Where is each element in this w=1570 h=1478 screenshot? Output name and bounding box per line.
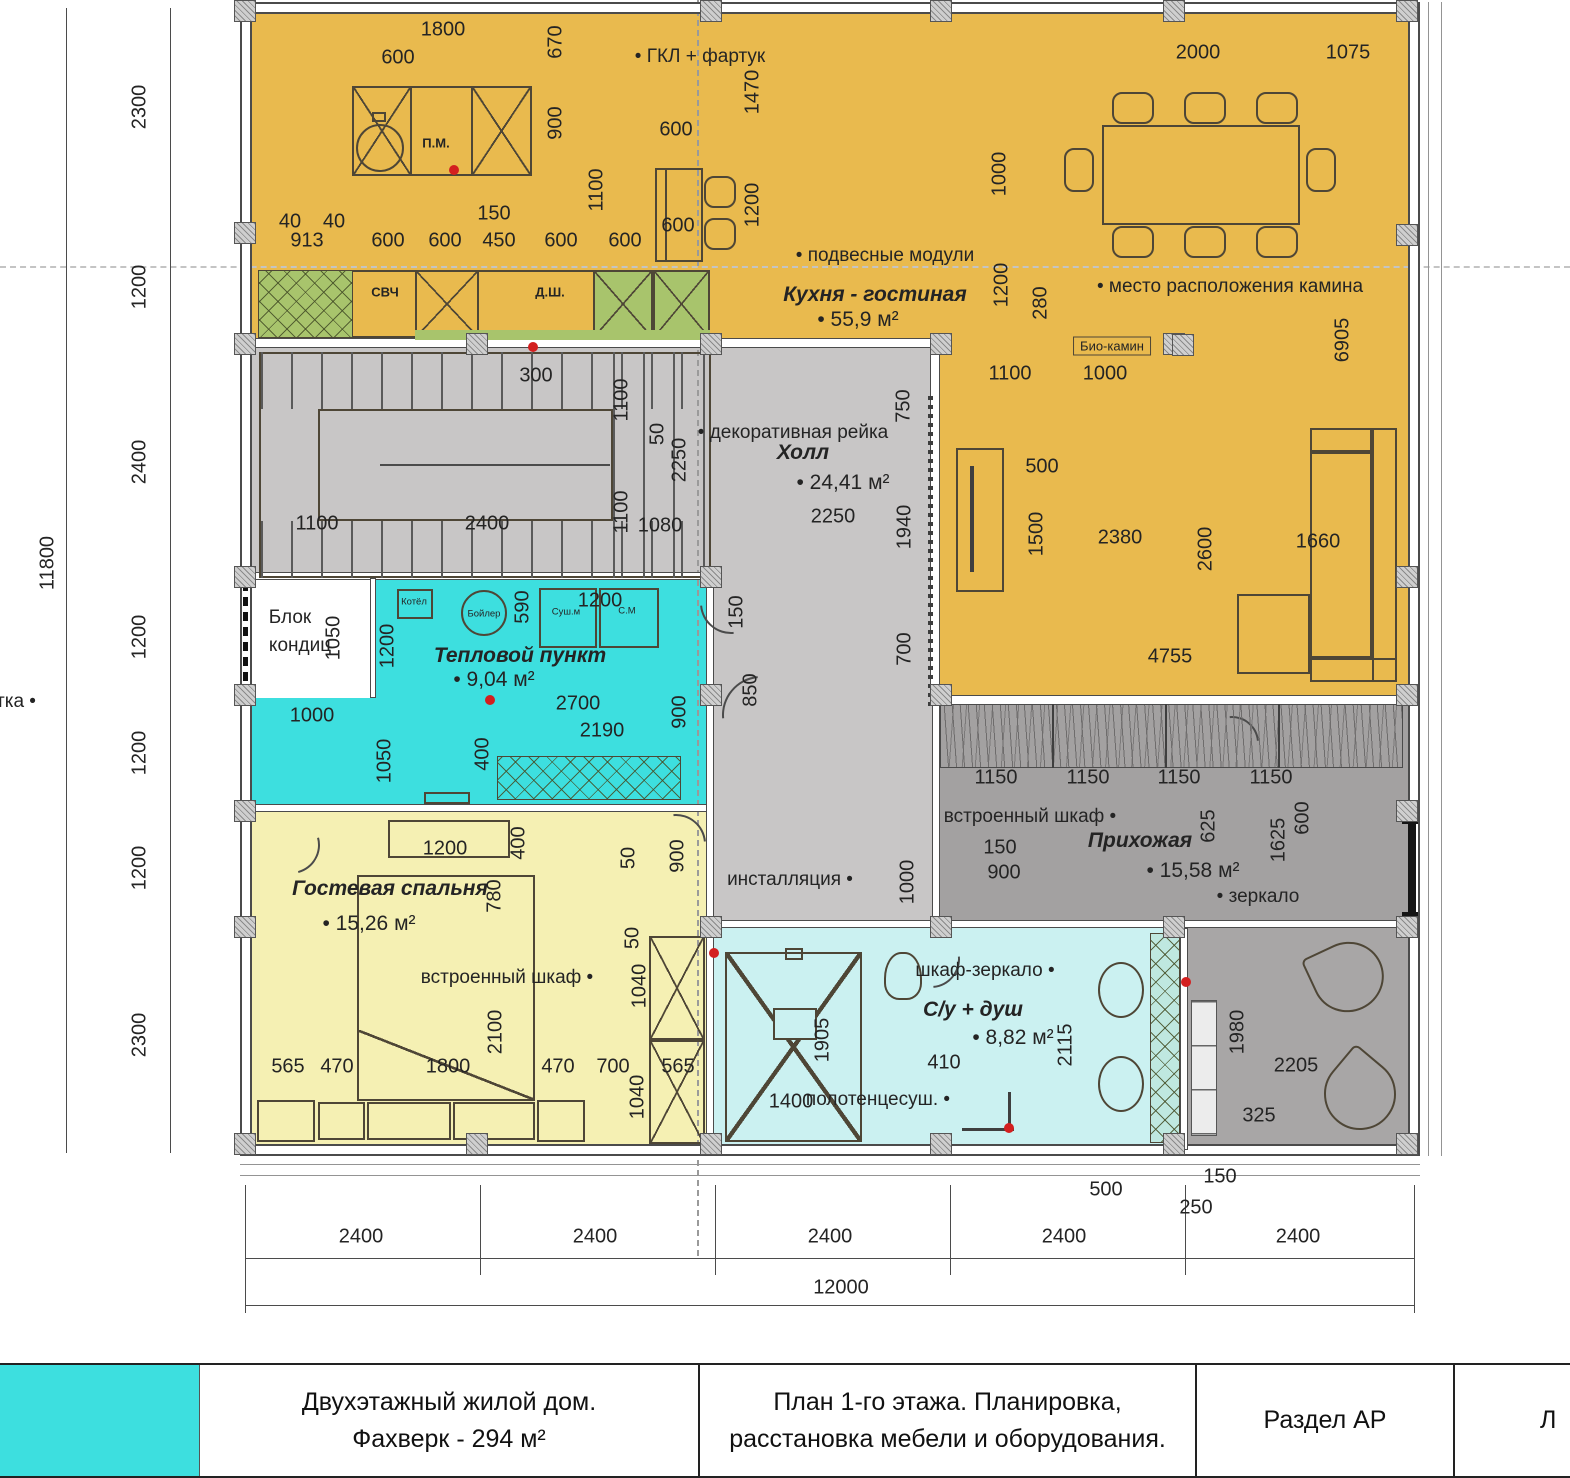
- sheet-name-line1: План 1-го этажа. Планировка,: [773, 1384, 1121, 1420]
- dim-label: 600: [608, 230, 641, 253]
- decorative-rail-dots: [928, 396, 933, 708]
- room-label-guest-bedroom: Гостевая спальня: [292, 877, 488, 901]
- dim-label: 2400: [1042, 1226, 1087, 1249]
- label-fireplace-location: место расположения камина: [1097, 276, 1363, 298]
- dim-label: 1905: [812, 1018, 835, 1063]
- mirror-panel: [1191, 1000, 1217, 1136]
- wall-bottom: [240, 1144, 1420, 1156]
- heat-shelf-x: [497, 756, 681, 800]
- dim-label: 1100: [586, 168, 609, 211]
- sink-left: [1098, 962, 1144, 1018]
- wardrobe-clothes: [940, 704, 1403, 768]
- dining-table: [1102, 125, 1300, 225]
- dim-label: 500: [1089, 1179, 1122, 1202]
- area-heat-point: 9,04 м²: [453, 668, 534, 692]
- column: [1396, 224, 1418, 246]
- sink-right: [1098, 1056, 1144, 1112]
- dim-label: 565: [271, 1056, 304, 1079]
- wardrobe-divider-1: [1052, 704, 1054, 768]
- bar-stool-2: [704, 218, 736, 250]
- label-washer: С.М: [618, 606, 635, 617]
- title-block-sheet-number: Л: [1455, 1365, 1570, 1476]
- dim-label: 50: [622, 927, 645, 949]
- dim-label: 900: [669, 695, 692, 728]
- label-hanging-modules: подвесные модули: [796, 245, 974, 267]
- marker-dot-2: [528, 342, 538, 352]
- dim-label: 2300: [129, 85, 152, 130]
- wall-bath-terrace: [1180, 928, 1188, 1150]
- dim-label: 50: [618, 847, 641, 869]
- dim-ext-6: [1414, 1185, 1415, 1313]
- label-boiler-unit: Котёл: [401, 597, 427, 608]
- counter-green-strip: [415, 330, 710, 340]
- dim-label: 1200: [742, 183, 765, 228]
- dim-label: 1980: [1227, 1010, 1250, 1055]
- dim-label: 1000: [1083, 363, 1128, 386]
- wall-corridor-entry: [932, 695, 940, 928]
- column: [700, 1133, 722, 1155]
- dim-label: 1100: [988, 363, 1031, 386]
- dim-label: 1200: [129, 265, 152, 310]
- column: [930, 0, 952, 22]
- column: [1396, 916, 1418, 938]
- dim-label: 1800: [426, 1056, 471, 1079]
- dim-label: 1500: [1026, 512, 1049, 557]
- dim-label: 12000: [813, 1277, 869, 1300]
- column: [700, 0, 722, 22]
- heat-device: [424, 792, 470, 804]
- dim-label: 2190: [580, 720, 625, 743]
- column: [930, 1133, 952, 1155]
- ac-unit-dashed-line: [243, 582, 248, 698]
- column: [700, 916, 722, 938]
- area-hall: 24,41 м²: [796, 471, 889, 495]
- sofa-seat: [1310, 452, 1372, 658]
- tv-screen: [970, 466, 974, 572]
- dim-label: 50: [647, 423, 670, 445]
- dim-label: 150: [1203, 1166, 1236, 1189]
- sheet-number-label: Л: [1540, 1402, 1556, 1438]
- wardrobe-divider-2: [1165, 704, 1167, 768]
- column: [466, 1133, 488, 1155]
- dim-label: 6905: [1332, 318, 1355, 363]
- bar-stool-1: [704, 176, 736, 208]
- dim-label: 600: [428, 230, 461, 253]
- dim-label: 1080: [638, 515, 683, 538]
- cabinet-green-left: [258, 270, 353, 338]
- sofa-bottom: [1310, 658, 1397, 682]
- dim-label: 1200: [423, 838, 468, 861]
- wardrobe-divider-3: [1278, 704, 1280, 768]
- label-builtin-wardrobe-entry: встроенный шкаф: [944, 806, 1116, 828]
- column: [234, 1133, 256, 1155]
- bed-bench-1: [257, 1100, 315, 1142]
- dim-label: 1100: [611, 378, 634, 421]
- title-block-section: Раздел АР: [1197, 1365, 1455, 1476]
- dim-label: 500: [1025, 456, 1058, 479]
- dim-label: 4755: [1148, 646, 1193, 669]
- dim-label: 325: [1242, 1105, 1275, 1128]
- label-builtin-wardrobe-bedroom: встроенный шкаф: [421, 967, 593, 989]
- column: [700, 684, 722, 706]
- cabinet-x-1: [415, 270, 479, 338]
- dim-label: 280: [1030, 286, 1053, 319]
- column: [1396, 566, 1418, 588]
- wall-corridor-left: [706, 572, 714, 1148]
- dim-label: 250: [1179, 1197, 1212, 1220]
- label-mirror: зеркало: [1217, 886, 1300, 908]
- dim-label: 1200: [578, 590, 623, 613]
- dim-label: 900: [987, 862, 1020, 885]
- sheet-name-line2: расстановка мебели и оборудования.: [729, 1421, 1166, 1457]
- label-dsh: Д.Ш.: [535, 285, 565, 300]
- dim-label: 600: [659, 119, 692, 142]
- dim-label: 1200: [129, 731, 152, 776]
- dim-label: 1200: [129, 615, 152, 660]
- dim-label: 1800: [421, 19, 466, 42]
- dim-label: 600: [544, 230, 577, 253]
- dim-label: 400: [508, 826, 531, 859]
- room-label-kitchen-living: Кухня - гостиная: [783, 283, 966, 307]
- dim-label: 565: [661, 1056, 694, 1079]
- column: [234, 0, 256, 22]
- area-kitchen-living: 55,9 м²: [817, 308, 898, 332]
- dim-label: 1470: [742, 70, 765, 115]
- column: [1163, 0, 1185, 22]
- marker-dot-5: [1004, 1123, 1014, 1133]
- dim-ext-1: [245, 1185, 246, 1313]
- dim-label: 2400: [573, 1226, 618, 1249]
- column: [234, 222, 256, 244]
- dim-label: 1075: [1326, 42, 1371, 65]
- dim-label: 410: [927, 1052, 960, 1075]
- dim-label: 900: [667, 839, 690, 872]
- marker-dot-4: [709, 948, 719, 958]
- title-block: Двухэтажный жилой дом. Фахверк - 294 м² …: [0, 1363, 1570, 1478]
- sink-tap: [372, 112, 386, 122]
- dim-label: 2400: [808, 1226, 853, 1249]
- column: [234, 800, 256, 822]
- bed-bench-3: [367, 1102, 451, 1140]
- dim-ext-3: [715, 1185, 716, 1275]
- ground-line-bottom: [240, 1164, 1420, 1176]
- dim-label: 1040: [629, 964, 652, 1009]
- shower-tap: [785, 948, 803, 960]
- column: [1396, 684, 1418, 706]
- project-name-line1: Двухэтажный жилой дом.: [302, 1384, 596, 1420]
- tv-unit: [956, 448, 1004, 592]
- dim-label: 300: [519, 365, 552, 388]
- column: [234, 566, 256, 588]
- dining-chair-left: [1064, 148, 1094, 192]
- room-label-entry: Прихожая: [1088, 829, 1192, 853]
- dim-label: 913: [290, 230, 323, 253]
- title-block-project: Двухэтажный жилой дом. Фахверк - 294 м²: [200, 1365, 700, 1476]
- column: [1396, 800, 1418, 822]
- column: [700, 333, 722, 355]
- dim-label: 11800: [37, 536, 60, 590]
- room-label-heat-point: Тепловой пункт: [434, 644, 606, 668]
- dim-line-left-outer: [66, 8, 67, 1153]
- marker-dot-1: [449, 165, 459, 175]
- column: [1396, 0, 1418, 22]
- marker-dot-6: [1181, 977, 1191, 987]
- dim-label: 1150: [974, 767, 1017, 790]
- dim-label: 750: [893, 389, 916, 422]
- section-label: Раздел АР: [1264, 1402, 1387, 1438]
- dim-label: 400: [472, 737, 495, 770]
- dim-label: 40: [323, 211, 345, 234]
- dim-line-left-inner: [170, 8, 171, 1153]
- kitchen-sink: [356, 124, 404, 172]
- dim-label: 2000: [1176, 42, 1221, 65]
- dim-label: 1050: [374, 739, 397, 784]
- dim-label: 1200: [377, 624, 400, 669]
- label-cut-left: тка: [0, 691, 36, 713]
- project-name-line2: Фахверк - 294 м²: [352, 1421, 546, 1457]
- closet-x-top: [649, 936, 705, 1040]
- axis-horizontal: [0, 266, 1570, 268]
- dim-label: 600: [381, 47, 414, 70]
- label-dishwasher: П.М.: [422, 136, 449, 151]
- title-block-sheet-name: План 1-го этажа. Планировка, расстановка…: [700, 1365, 1197, 1476]
- dim-label: 700: [894, 632, 917, 665]
- dim-label: 1200: [991, 263, 1014, 308]
- room-label-bathroom: С/у + душ: [923, 998, 1023, 1022]
- column: [930, 333, 952, 355]
- dim-label: 1100: [611, 490, 634, 533]
- dim-label: 700: [596, 1056, 629, 1079]
- dim-label: 1200: [129, 846, 152, 891]
- dim-label: 1150: [1249, 767, 1292, 790]
- dim-line-bottom-overall: [245, 1305, 1415, 1306]
- bed-bench-2: [318, 1102, 365, 1140]
- dim-label: 2250: [811, 506, 856, 529]
- area-guest-bedroom: 15,26 м²: [322, 912, 415, 936]
- dim-label: 1040: [627, 1075, 650, 1120]
- column: [1396, 1133, 1418, 1155]
- column: [466, 333, 488, 355]
- dim-label: 2400: [339, 1226, 384, 1249]
- dining-chair-bottom-2: [1184, 226, 1226, 258]
- dim-label: 1000: [897, 860, 920, 905]
- area-entry: 15,58 м²: [1146, 859, 1239, 883]
- dim-label: 450: [482, 230, 515, 253]
- dim-label: 470: [541, 1056, 574, 1079]
- dim-label: 1625: [1268, 818, 1291, 863]
- label-water-heater: Бойлер: [468, 609, 501, 620]
- wall-ac-block: [370, 578, 376, 698]
- dim-label: 600: [661, 215, 694, 238]
- dim-label: 2380: [1098, 527, 1143, 550]
- column: [1163, 916, 1185, 938]
- sofa-back-top: [1310, 428, 1372, 452]
- floor-plan: 1180023001200240012001200120023001800600…: [0, 0, 1570, 1360]
- dim-label: 1660: [1296, 531, 1341, 554]
- dim-label: 850: [740, 673, 763, 706]
- dim-label: 1000: [989, 152, 1012, 197]
- column: [234, 916, 256, 938]
- dim-label: 900: [545, 106, 568, 139]
- label-mirror-cabinet: шкаф-зеркало: [915, 960, 1054, 982]
- dining-chair-bottom-3: [1256, 226, 1298, 258]
- area-bathroom: 8,82 м²: [972, 1026, 1053, 1050]
- dim-label: 1150: [1157, 767, 1200, 790]
- dim-ext-2: [480, 1185, 481, 1275]
- shower-pan-lines: [725, 952, 862, 1142]
- dim-label: 625: [1198, 809, 1221, 842]
- dim-label: 150: [477, 203, 510, 226]
- column: [234, 333, 256, 355]
- label-ac-block-1: Блок: [269, 607, 311, 629]
- dim-label: 1000: [290, 705, 335, 728]
- porch-edge-right: [1428, 2, 1442, 1156]
- dining-chair-top-2: [1184, 92, 1226, 124]
- dining-chair-bottom-1: [1112, 226, 1154, 258]
- dim-line-bottom-chain: [245, 1258, 1415, 1259]
- dim-label: 600: [1292, 801, 1315, 834]
- column: [930, 916, 952, 938]
- floor-plan-sheet: 1180023001200240012001200120023001800600…: [0, 0, 1570, 1478]
- dim-label: 470: [320, 1056, 353, 1079]
- dim-label: 1150: [1066, 767, 1109, 790]
- dim-label: 590: [512, 590, 535, 623]
- dim-label: 2205: [1274, 1055, 1319, 1078]
- stairs-direction-line: [380, 464, 610, 466]
- column: [1172, 334, 1194, 356]
- column: [234, 684, 256, 706]
- sofa-chaise: [1237, 594, 1310, 674]
- cabinet-x-2: [593, 270, 653, 338]
- dim-label: 670: [545, 25, 568, 58]
- entrance-door-leaf: [1408, 822, 1416, 918]
- dim-label: 2250: [669, 438, 692, 483]
- vanity-wall-x: [1150, 933, 1180, 1143]
- dim-label: 1940: [894, 505, 917, 550]
- shower-drain: [773, 1008, 817, 1040]
- counter-cabinet-x-right: [471, 86, 532, 176]
- label-gkl-fartuk: ГКЛ + фартук: [635, 46, 766, 68]
- dim-label: 2115: [1055, 1023, 1078, 1066]
- room-label-hall: Холл: [777, 441, 829, 465]
- dim-label: 600: [371, 230, 404, 253]
- title-block-empty-cell: [0, 1365, 200, 1476]
- label-microwave: СВЧ: [371, 285, 398, 300]
- dim-label: 150: [726, 595, 749, 628]
- dim-label: 2400: [129, 440, 152, 485]
- column: [930, 684, 952, 706]
- dim-label: 150: [983, 837, 1016, 860]
- dim-label: 1050: [323, 616, 346, 661]
- column: [1163, 1133, 1185, 1155]
- dining-chair-top-1: [1112, 92, 1154, 124]
- cabinet-x-3: [653, 270, 710, 338]
- label-bio-fireplace: Био-камин: [1073, 337, 1151, 356]
- wall-bathroom-top: [706, 920, 1408, 928]
- wall-top: [240, 2, 1420, 14]
- dim-label: 2700: [556, 693, 601, 716]
- dining-chair-right: [1306, 148, 1336, 192]
- label-towel-rail: полотенцесуш.: [806, 1089, 950, 1111]
- dim-label: 1100: [295, 513, 338, 536]
- dim-label: 2600: [1195, 527, 1218, 572]
- column: [700, 566, 722, 588]
- dining-chair-top-3: [1256, 92, 1298, 124]
- label-installation: инсталляция: [727, 869, 853, 891]
- dim-label: 2400: [465, 513, 510, 536]
- sofa-back-right: [1372, 428, 1397, 682]
- dim-ext-4: [950, 1185, 951, 1275]
- bed-bench-5: [537, 1100, 585, 1142]
- dim-label: 2300: [129, 1013, 152, 1058]
- dim-label: 2400: [1276, 1226, 1321, 1249]
- marker-dot-3: [485, 695, 495, 705]
- label-dryer: Суш.м: [552, 607, 580, 618]
- dim-label: 2100: [485, 1010, 508, 1055]
- wall-heat-bedroom: [252, 804, 712, 812]
